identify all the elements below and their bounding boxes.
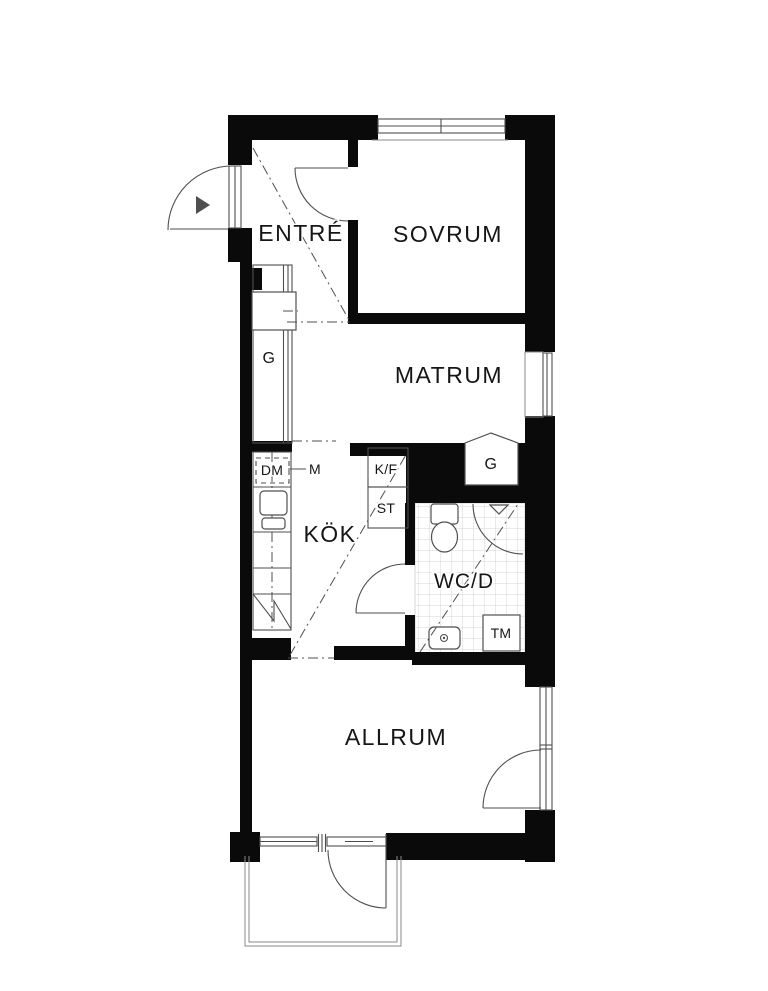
label-washing-machine: TM — [491, 625, 512, 641]
entrance-arrow-icon — [196, 196, 210, 214]
wall-segment — [405, 503, 415, 565]
room-label-matrum: MATRUM — [395, 362, 503, 388]
sovrum-door — [295, 168, 348, 221]
wall-segment — [228, 115, 252, 165]
balcony-outline-inner — [249, 856, 397, 942]
room-label-kok: KÖK — [303, 521, 356, 547]
balcony-outline — [245, 856, 401, 946]
wall-segment — [525, 416, 555, 687]
wcd-door-swing-arc — [356, 564, 405, 613]
entry-door-swing-arc — [168, 166, 232, 230]
balcony-door-swing-arc — [483, 750, 541, 808]
wall-segment — [386, 833, 555, 860]
sink-basin-small-icon — [262, 518, 285, 529]
wall-segment — [334, 646, 412, 660]
wall-segment — [355, 313, 525, 324]
wall-segment — [406, 443, 465, 503]
label-micro: M — [309, 461, 321, 477]
kitchen-counter — [253, 452, 306, 630]
floor-drain-dot — [443, 637, 445, 639]
label-fridge-freezer: K/F — [375, 461, 398, 477]
room-label-entre: ENTRÉ — [258, 220, 343, 246]
label-pantry: ST — [377, 500, 396, 516]
room-label-wcd: WC/D — [434, 570, 494, 593]
label-closet-hall: G — [485, 456, 498, 473]
toilet-bowl-icon — [432, 522, 458, 552]
sink-basin-icon — [260, 491, 287, 515]
balcony — [245, 856, 401, 946]
window-niche — [525, 352, 543, 417]
sovrum-window — [372, 119, 508, 140]
matrum-window — [525, 352, 552, 417]
toilet-cistern-icon — [431, 504, 458, 524]
wall-segment — [348, 220, 358, 324]
allrum-window-door — [483, 687, 552, 810]
floor-plan-page: ENTRÉ SOVRUM MATRUM KÖK WC/D ALLRUM G G … — [0, 0, 768, 991]
bottom-window-door — [260, 834, 386, 908]
wall-segment — [412, 652, 525, 665]
balcony-door-swing-arc — [328, 850, 386, 908]
label-dishwasher: DM — [261, 462, 283, 478]
wall-segment — [348, 133, 358, 167]
wall-segment — [350, 443, 412, 456]
wall-segment — [465, 485, 525, 503]
wall-segment — [240, 262, 252, 833]
floor-plan-svg: ENTRÉ SOVRUM MATRUM KÖK WC/D ALLRUM G G … — [0, 0, 768, 991]
label-closet-entre: G — [263, 350, 276, 367]
kitchen-tall-units — [368, 448, 408, 528]
room-label-allrum: ALLRUM — [345, 724, 447, 750]
entry-door — [168, 166, 241, 230]
wall-segment — [240, 638, 291, 660]
sovrum-door-swing-arc — [295, 168, 348, 221]
wall-segment — [525, 115, 555, 352]
room-label-sovrum: SOVRUM — [393, 221, 503, 247]
wall-segment — [228, 228, 252, 262]
section-line — [290, 453, 407, 655]
wall-segment — [518, 443, 525, 485]
